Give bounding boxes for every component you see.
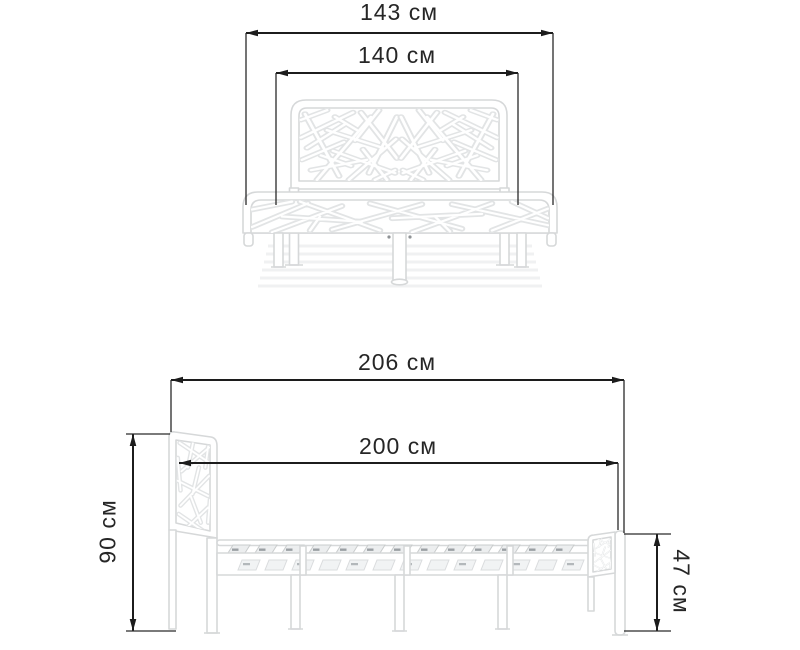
label-frame-height: 47 см xyxy=(669,522,694,642)
bed-front-view-illustration xyxy=(243,100,557,286)
label-sleeping-width: 140 см xyxy=(297,43,497,68)
frame-legs-side xyxy=(288,575,510,631)
frame-rail-side xyxy=(217,540,591,575)
label-headboard-height: 90 см xyxy=(96,472,121,592)
label-overall-width: 143 см xyxy=(299,0,499,25)
label-overall-length: 206 см xyxy=(297,350,497,375)
dimension-frame-height xyxy=(624,534,671,631)
label-sleeping-length: 200 см xyxy=(298,434,498,459)
dimension-sleeping-length xyxy=(179,463,618,530)
footboard-front xyxy=(243,192,557,233)
headboard-front xyxy=(291,100,507,189)
dimensions-diagram: 143 см 140 см 206 см 200 см 90 см 47 см xyxy=(0,0,800,650)
footboard-side xyxy=(588,531,628,635)
